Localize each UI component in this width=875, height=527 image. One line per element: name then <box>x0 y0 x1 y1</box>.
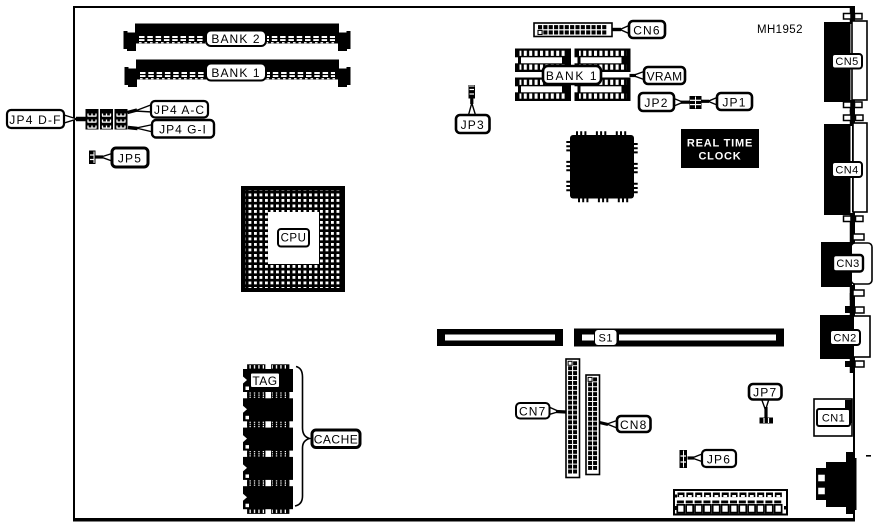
svg-text:CN3: CN3 <box>836 258 859 270</box>
svg-text:CLOCK: CLOCK <box>698 151 741 163</box>
svg-text:JP5: JP5 <box>118 151 142 165</box>
svg-text:VRAM: VRAM <box>647 69 683 83</box>
svg-text:CN1: CN1 <box>822 412 845 424</box>
svg-text:JP4 A-C: JP4 A-C <box>154 103 205 117</box>
svg-text:JP2: JP2 <box>644 96 668 110</box>
svg-text:CN2: CN2 <box>833 332 856 344</box>
svg-text:CPU: CPU <box>281 233 307 245</box>
svg-text:CN4: CN4 <box>835 164 858 176</box>
svg-text:MH1952: MH1952 <box>757 24 803 36</box>
svg-text:CN5: CN5 <box>835 56 858 68</box>
svg-text:CN6: CN6 <box>633 23 661 37</box>
svg-text:JP7: JP7 <box>753 386 777 400</box>
svg-text:S1: S1 <box>599 332 613 344</box>
svg-text:CN8: CN8 <box>620 418 648 432</box>
svg-text:JP4 D-F: JP4 D-F <box>9 113 61 127</box>
svg-text:CN7: CN7 <box>519 405 547 419</box>
svg-text:JP3: JP3 <box>461 118 485 132</box>
svg-text:JP1: JP1 <box>722 95 746 109</box>
svg-text:CACHE: CACHE <box>314 433 359 447</box>
svg-text:BANK 1: BANK 1 <box>211 66 260 80</box>
svg-text:JP6: JP6 <box>707 452 731 466</box>
svg-text:TAG: TAG <box>252 374 277 388</box>
svg-text:REAL TIME: REAL TIME <box>687 138 753 150</box>
svg-text:JP4 G-I: JP4 G-I <box>159 123 207 137</box>
svg-text:BANK 2: BANK 2 <box>211 32 260 46</box>
svg-text:BANK 1: BANK 1 <box>546 69 598 83</box>
